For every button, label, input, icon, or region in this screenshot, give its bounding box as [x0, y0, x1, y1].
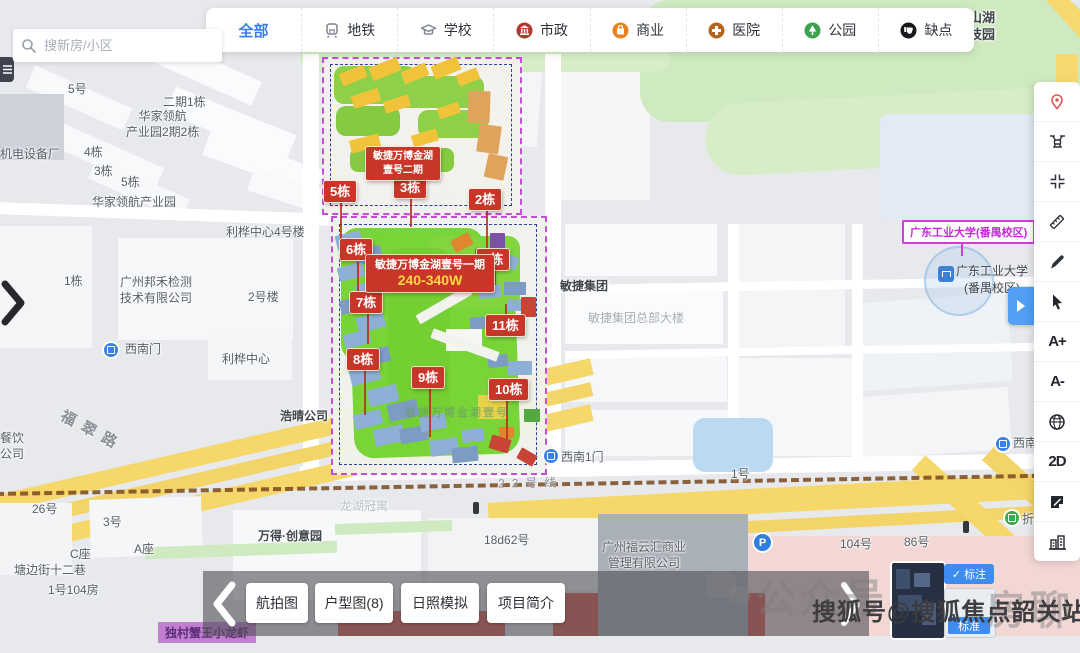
map-shape [521, 297, 536, 317]
gate-icon [996, 437, 1010, 451]
annotation-label: 标注 [964, 566, 986, 582]
filter-label: 地铁 [347, 20, 375, 40]
filter-hospital[interactable]: 医院 [687, 8, 783, 52]
floorplan-button[interactable]: 户型图(8) [315, 583, 393, 623]
poi-label: 2号楼 [248, 290, 279, 306]
chevron-left-icon [209, 579, 239, 629]
poi-label: C座 [70, 547, 91, 563]
search-box[interactable] [13, 29, 222, 62]
tool-font-decrease[interactable]: A- [1034, 362, 1080, 402]
poi-label: 敏捷集团 [560, 279, 608, 295]
map-shape [476, 124, 502, 155]
poi-label: 104号 [840, 537, 872, 553]
traffic-light-icon [473, 502, 479, 514]
drone-icon [1048, 133, 1067, 150]
poi-label: 西南1门 [561, 450, 604, 466]
metro-icon [324, 22, 340, 38]
font-increase-label: A+ [1048, 333, 1066, 350]
map-shape [524, 409, 540, 422]
map-shape [490, 233, 505, 250]
building-tag[interactable]: 5栋 [324, 181, 356, 202]
panel-collapse-tab[interactable] [1008, 287, 1034, 325]
poi-label: 3栋 [94, 164, 113, 180]
map-shape [693, 418, 773, 472]
tag-connector [367, 314, 369, 344]
category-filter-bar: 全部 地铁 学校 市政 商业 [206, 8, 974, 52]
prev-button[interactable] [209, 579, 239, 634]
poi-label: 利桦中心4号楼 [226, 225, 305, 241]
poi-label: 龙湖冠寓 [340, 499, 388, 515]
filter-park[interactable]: 公园 [783, 8, 879, 52]
map-shape [504, 282, 526, 295]
map-shape [467, 91, 490, 124]
sunlight-sim-button[interactable]: 日照模拟 [401, 583, 479, 623]
poi-label: 广州邦禾检测 技术有限公司 [120, 275, 192, 306]
poi-label: 机电设备厂 [0, 147, 60, 163]
school-poi-icon [938, 266, 954, 282]
parking-icon: P [754, 534, 771, 551]
tool-fullscreen[interactable] [1034, 162, 1080, 202]
map-shape [855, 293, 1013, 391]
poi-label: 5号 [68, 82, 87, 98]
tool-earth-view[interactable] [1034, 402, 1080, 442]
poi-label: 塘边街十二巷 [14, 563, 86, 579]
map-shape [565, 224, 717, 276]
filter-label: 全部 [239, 20, 269, 41]
tool-measure[interactable] [1034, 202, 1080, 242]
notepad-icon [1048, 493, 1066, 511]
tool-draw[interactable] [1034, 242, 1080, 282]
filter-label: 缺点 [924, 20, 952, 40]
filter-label: 医院 [732, 20, 760, 40]
filter-metro[interactable]: 地铁 [302, 8, 398, 52]
poi-label: 万得·创意园 [258, 529, 322, 545]
building-tag[interactable]: 7栋 [350, 292, 382, 313]
tool-font-increase[interactable]: A+ [1034, 322, 1080, 362]
tag-connector [410, 199, 412, 227]
map-shape [451, 446, 478, 464]
gate-icon [544, 449, 558, 463]
map-shape [508, 361, 532, 375]
plan-watermark: 敏捷万博金湖壹号 [405, 404, 509, 420]
filter-label: 商业 [636, 20, 664, 40]
road-label-fucui: 福翠路 [57, 405, 128, 456]
park-icon [804, 22, 821, 39]
search-input[interactable] [42, 37, 214, 54]
filter-school[interactable]: 学校 [398, 8, 494, 52]
cursor-icon [1049, 293, 1065, 311]
buildings-icon [1048, 533, 1067, 551]
map-shape [856, 387, 1012, 459]
map-app: { "search": { "placeholder": "搜新房/小区" },… [0, 0, 1080, 636]
map-shape [560, 60, 650, 200]
poi-label: 3号 [103, 515, 122, 531]
university-label[interactable]: 广东工业大学(番禺校区) [902, 220, 1035, 244]
expand-panel-chevron[interactable] [0, 276, 28, 335]
fullscreen-icon [1049, 173, 1066, 190]
building-tag[interactable]: 9栋 [412, 367, 444, 388]
poi-label: 敏捷集团总部大楼 [588, 311, 684, 327]
poi-label: 华家领航产业园 [92, 195, 176, 211]
watermark-primary: 搜狐号@搜狐焦点韶关站 [812, 592, 1080, 627]
tool-buildings[interactable] [1034, 522, 1080, 561]
map-shape [303, 54, 319, 468]
defect-icon [900, 22, 917, 39]
building-tag[interactable]: 3栋 [394, 177, 426, 198]
phase1-price: 240-340W [371, 272, 489, 289]
gate-icon [104, 343, 118, 357]
school-icon [420, 22, 437, 38]
tag-connector [494, 271, 496, 285]
shopping-icon [612, 22, 629, 39]
phase1-name: 敏捷万博金湖壹号一期 [371, 258, 489, 272]
phase2-project-label[interactable]: 敏捷万博金湖壹号二期 [366, 147, 440, 180]
filter-shopping[interactable]: 商业 [591, 8, 687, 52]
traffic-light-icon [963, 521, 969, 533]
building-tag[interactable]: 8栋 [347, 349, 379, 370]
building-tag[interactable]: 2栋 [469, 189, 501, 210]
legend-toggle[interactable] [0, 57, 14, 82]
poi-label: 餐饮 公司 [0, 431, 24, 462]
pen-icon [1048, 253, 1066, 271]
building-tag[interactable]: 10栋 [489, 379, 528, 400]
poi-label: 广州福云汇商业 管理有限公司 [602, 540, 686, 571]
poi-label: 西南门 [125, 342, 161, 358]
filter-government[interactable]: 市政 [494, 8, 590, 52]
poi-label: 1栋 [64, 274, 83, 290]
poi-label: 26号 [32, 502, 57, 518]
tag-connector [364, 371, 366, 415]
list-icon [3, 64, 12, 75]
hospital-icon [708, 22, 725, 39]
search-icon [21, 38, 36, 53]
chevron-right-icon [0, 276, 28, 330]
map-canvas[interactable]: 22号线 福翠路 5栋 3栋 2栋 6栋 1栋 7栋 11栋 8栋 9栋 10栋… [0, 0, 1080, 636]
bus-stop-icon [1005, 511, 1019, 525]
tool-2d-view[interactable]: 2D [1034, 442, 1080, 482]
project-intro-button[interactable]: 项目简介 [487, 583, 565, 623]
aerial-view-button[interactable]: 航拍图 [246, 583, 308, 623]
building-tag[interactable]: 11栋 [486, 315, 525, 336]
poi-label: 华家领航 产业园2期2栋 [126, 109, 199, 140]
check-icon: ✓ [952, 568, 961, 581]
phase1-project-label[interactable]: 敏捷万博金湖壹号一期 240-340W [366, 255, 494, 292]
poi-label: 18d62号 [484, 533, 529, 549]
tool-locate[interactable] [1034, 82, 1080, 122]
tool-drone-view[interactable] [1034, 122, 1080, 162]
poi-label: 5栋 [121, 175, 140, 191]
chat-bubble-icon [730, 586, 750, 604]
location-pin-icon [1048, 93, 1066, 111]
poi-label: A座 [134, 542, 154, 558]
poi-label: 浩晴公司 [280, 409, 328, 425]
earth-icon [1048, 413, 1066, 431]
map-shape [461, 428, 484, 443]
filter-label: 学校 [444, 20, 472, 40]
2d-label: 2D [1048, 453, 1065, 470]
metro-line-label: 22号线 [498, 473, 564, 491]
poi-label: 利桦中心 [222, 352, 270, 368]
triangle-right-icon [1017, 300, 1025, 312]
tool-notes[interactable] [1034, 482, 1080, 522]
filter-label: 市政 [540, 20, 568, 40]
university-label-connector [961, 242, 963, 256]
ruler-icon [1048, 213, 1066, 231]
font-decrease-label: A- [1050, 373, 1064, 390]
poi-label: 86号 [904, 535, 929, 551]
filter-defect[interactable]: 缺点 [879, 8, 974, 52]
poi-label: 1号 [731, 467, 750, 483]
poi-label: 4栋 [84, 145, 103, 161]
map-shape [852, 224, 863, 462]
tool-select[interactable] [1034, 282, 1080, 322]
filter-label: 公园 [828, 20, 856, 40]
government-icon [516, 22, 533, 39]
poi-label: 1号104房 [48, 583, 99, 599]
map-tools-sidebar: A+ A- 2D [1034, 82, 1080, 561]
